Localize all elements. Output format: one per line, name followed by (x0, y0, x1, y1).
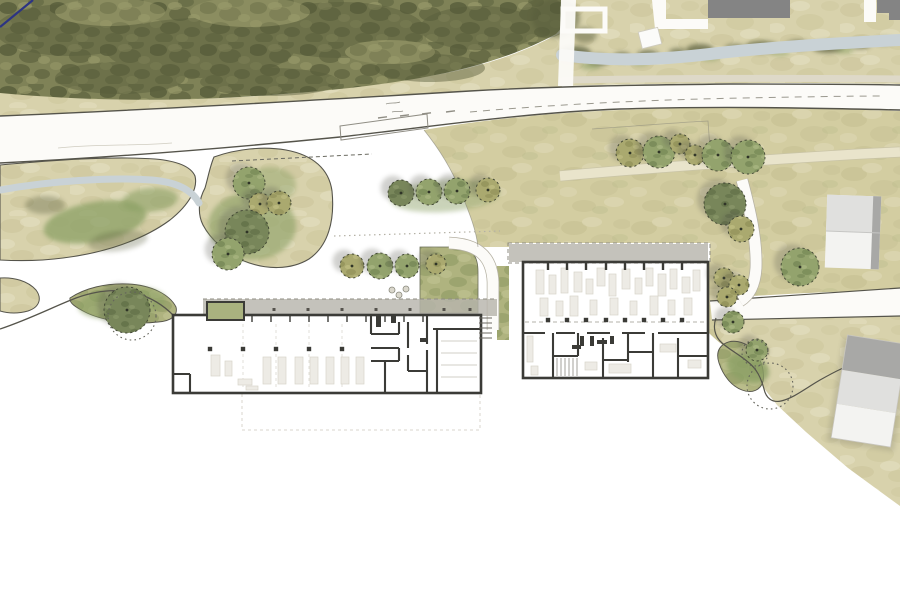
right-building-equipment (609, 274, 616, 296)
left-building-column (208, 347, 212, 351)
right-building-equipment (650, 296, 658, 315)
left-building-equipment (341, 357, 349, 384)
left-building-equipment (211, 355, 220, 376)
courtyard-furniture (389, 287, 395, 293)
right-building-equipment (536, 270, 544, 294)
left-building-canopy-post (341, 308, 344, 311)
left-building-canopy-post (409, 308, 412, 311)
left-building-canopy-post (443, 308, 446, 311)
tree-trunk-dot (227, 253, 230, 256)
left-building-wall-stub (420, 338, 427, 342)
tree-trunk-dot (126, 309, 129, 312)
tree-trunk-dot (246, 231, 249, 234)
left-building-equipment (356, 357, 364, 384)
right-building-wall-stub (580, 336, 584, 346)
right-building-wall-stub (590, 336, 594, 346)
courtyard-furniture (396, 292, 402, 298)
left-building-canopy-post (307, 308, 310, 311)
left-building-equipment (295, 357, 303, 384)
right-building-facade-column (662, 263, 664, 270)
tree-trunk-dot (406, 265, 409, 268)
right-building-column (642, 318, 646, 322)
right-building-wall-stub (597, 340, 607, 344)
left-building-facade-mullion (403, 316, 404, 322)
right-building-equipment (597, 268, 605, 286)
tree-trunk-dot (799, 266, 802, 269)
right-building-equipment (609, 364, 631, 373)
right-building-facade-column (585, 263, 587, 270)
left-building-facade-mullion (308, 316, 309, 322)
right-building-facade-column (605, 263, 607, 270)
left-building-column (340, 347, 344, 351)
right-building-canopy (509, 244, 708, 262)
right-building-column (584, 318, 588, 322)
tree-trunk-dot (379, 265, 382, 268)
left-building-facade-mullion (365, 316, 366, 322)
tree-trunk-dot (278, 202, 281, 205)
right-building-equipment (549, 275, 556, 294)
left-building-facade-mullion (251, 316, 252, 322)
right-building-equipment (531, 366, 538, 375)
right-building-equipment (684, 298, 692, 315)
tree-trunk-dot (629, 152, 632, 155)
right-building-equipment (635, 278, 642, 294)
right-building-equipment (574, 272, 582, 292)
tree-trunk-dot (487, 189, 490, 192)
right-building-equipment (585, 362, 597, 370)
left-building-equipment (263, 357, 271, 384)
right-building-equipment (527, 336, 533, 362)
bank-footpath (864, 0, 876, 22)
left-building-facade-mullion (422, 316, 423, 322)
right-building-equipment (630, 301, 637, 315)
left-building-equipment (326, 357, 334, 384)
left-building-column (241, 347, 245, 351)
right-building-column (546, 318, 550, 322)
left-building-canopy (203, 299, 497, 316)
tree-trunk-dot (717, 154, 720, 157)
right-building-facade-column (566, 263, 568, 270)
right-building-equipment (658, 274, 666, 296)
tree-trunk-dot (724, 203, 727, 206)
right-building-equipment (610, 298, 618, 315)
right-building-equipment (556, 301, 563, 316)
right-building-wall-stub (610, 336, 614, 344)
right-building-equipment (682, 277, 690, 293)
right-building-column (661, 318, 665, 322)
tree-trunk-dot (248, 182, 251, 185)
right-building-facade-column (624, 263, 626, 270)
right-building-equipment (693, 270, 700, 291)
right-building-equipment (622, 269, 630, 289)
right-building-column (623, 318, 627, 322)
tree-trunk-dot (740, 228, 743, 231)
neighbor-house-north (825, 195, 882, 270)
left-building-canopy-post (469, 308, 472, 311)
neighbor-flat-roof (708, 0, 790, 18)
right-building-column (604, 318, 608, 322)
shrub-mass (25, 196, 65, 214)
left-building-facade-mullion (346, 316, 347, 322)
right-building-equipment (670, 269, 677, 289)
right-building-wall-stub (572, 345, 581, 349)
tree-trunk-dot (726, 296, 729, 299)
left-building-facade-mullion (289, 316, 290, 322)
right-building-facade-column (643, 263, 645, 270)
tree-trunk-dot (747, 156, 750, 159)
tree-trunk-dot (732, 321, 735, 324)
left-building-wall-stub (376, 316, 381, 327)
tree-trunk-dot (351, 265, 354, 268)
left-building-facade-mullion (327, 316, 328, 322)
left-building-canopy-post (273, 308, 276, 311)
right-building-equipment (688, 360, 701, 368)
road-shoulder-path (562, 78, 900, 80)
right-building-equipment (586, 279, 593, 294)
right-building-column (565, 318, 569, 322)
left-building-equipment (238, 379, 252, 385)
left-building-facade-mullion (384, 316, 385, 322)
left-building-equipment (225, 361, 232, 376)
left-building-equipment (278, 357, 286, 384)
left-building-facade-mullion (270, 316, 271, 322)
right-building-equipment (590, 300, 597, 315)
right-building-equipment (561, 268, 568, 293)
tree-trunk-dot (456, 190, 459, 193)
tree-trunk-dot (435, 263, 438, 266)
left-building-wall-stub (391, 316, 396, 323)
right-building-equipment (570, 296, 578, 316)
tree-trunk-dot (400, 192, 403, 195)
right-building-equipment (646, 268, 653, 286)
right-building-facade-column (681, 263, 683, 270)
right-building-facade-column (547, 263, 549, 270)
left-building-column (307, 347, 311, 351)
entrance-planter (207, 302, 244, 320)
tree-trunk-dot (756, 349, 759, 352)
right-building-column (680, 318, 684, 322)
right-building-equipment (668, 300, 675, 315)
courtyard-furniture (403, 286, 409, 292)
left-building-equipment (246, 386, 258, 390)
right-building-equipment (540, 298, 548, 316)
site-plan-drawing (0, 0, 900, 600)
left-building-equipment (310, 357, 318, 384)
tree-trunk-dot (428, 191, 431, 194)
site-plan-canvas (0, 0, 900, 600)
left-building-canopy-post (375, 308, 378, 311)
right-building-equipment (660, 344, 676, 352)
left-building-column (274, 347, 278, 351)
tree-trunk-dot (658, 151, 661, 154)
tree-trunk-dot (738, 284, 741, 287)
